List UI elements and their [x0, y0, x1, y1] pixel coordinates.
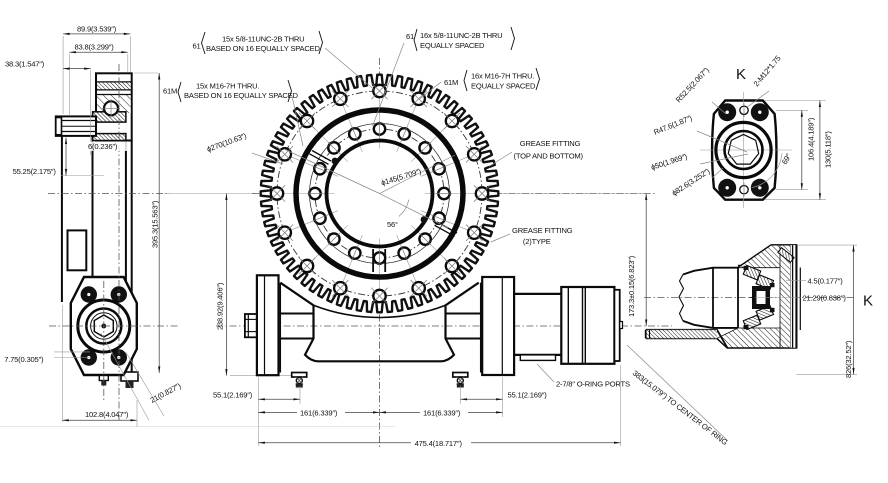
svg-text:61M: 61M: [444, 78, 458, 87]
svg-text:EQUALLY SPACED: EQUALLY SPACED: [471, 82, 536, 91]
svg-text:GREASE FITTING: GREASE FITTING: [520, 139, 581, 148]
svg-text:106.4(4.189″): 106.4(4.189″): [807, 117, 816, 161]
svg-text:55.1(2.169″): 55.1(2.169″): [213, 391, 253, 400]
svg-text:161(6.339″): 161(6.339″): [300, 409, 338, 418]
svg-text:(2)TYPE: (2)TYPE: [523, 237, 551, 246]
svg-text:475.4(18.717″): 475.4(18.717″): [415, 439, 463, 448]
svg-text:15x 5/8-11UNC-2B THRU: 15x 5/8-11UNC-2B THRU: [222, 35, 304, 44]
svg-text:102.8(4.047″): 102.8(4.047″): [85, 410, 129, 419]
svg-text:61: 61: [406, 32, 414, 41]
svg-text:61: 61: [193, 42, 201, 51]
svg-text:7.75(0.305″): 7.75(0.305″): [4, 355, 44, 364]
svg-text:83.8(3.299″): 83.8(3.299″): [75, 43, 115, 52]
svg-text:173.3±0.15(6.823″): 173.3±0.15(6.823″): [627, 255, 636, 317]
svg-text:15x M16-7H THRU.: 15x M16-7H THRU.: [196, 82, 259, 91]
svg-text:161(6.339″): 161(6.339″): [423, 409, 461, 418]
svg-text:BASED ON 16 EQUALLY SPACED: BASED ON 16 EQUALLY SPACED: [206, 44, 321, 53]
svg-text:61M: 61M: [163, 87, 177, 96]
svg-text:56°: 56°: [387, 220, 398, 229]
svg-text:EQUALLY SPACED: EQUALLY SPACED: [420, 41, 485, 50]
svg-text:2-7/8″ O-RING PORTS: 2-7/8″ O-RING PORTS: [556, 380, 630, 389]
svg-text:130(5.118″): 130(5.118″): [824, 131, 833, 168]
svg-text:21.29(0.838″): 21.29(0.838″): [803, 294, 847, 303]
svg-text:16x 5/8-11UNC-2B THRU: 16x 5/8-11UNC-2B THRU: [420, 31, 502, 40]
svg-text:826(32.52″): 826(32.52″): [844, 340, 853, 378]
svg-text:55.25(2.175″): 55.25(2.175″): [13, 167, 57, 176]
svg-text:238.92(9.406″): 238.92(9.406″): [216, 282, 225, 330]
svg-text:6(0.236″): 6(0.236″): [88, 142, 118, 151]
svg-text:K: K: [863, 293, 873, 310]
svg-text:16x M16-7H THRU.: 16x M16-7H THRU.: [471, 72, 534, 81]
svg-text:K: K: [736, 66, 746, 83]
svg-text:BASED ON 16 EQUALLY SPACED: BASED ON 16 EQUALLY SPACED: [184, 91, 299, 100]
svg-text:395.3(15.563″): 395.3(15.563″): [151, 200, 160, 248]
svg-text:(TOP AND BOTTOM): (TOP AND BOTTOM): [514, 152, 584, 161]
svg-text:55.1(2.169″): 55.1(2.169″): [508, 391, 548, 400]
svg-text:89.9(3.539″): 89.9(3.539″): [77, 25, 117, 34]
svg-text:4.5(0.177″): 4.5(0.177″): [808, 276, 844, 285]
svg-text:GREASE FITTING: GREASE FITTING: [512, 226, 573, 235]
svg-text:38.3(1.547″): 38.3(1.547″): [5, 60, 45, 69]
